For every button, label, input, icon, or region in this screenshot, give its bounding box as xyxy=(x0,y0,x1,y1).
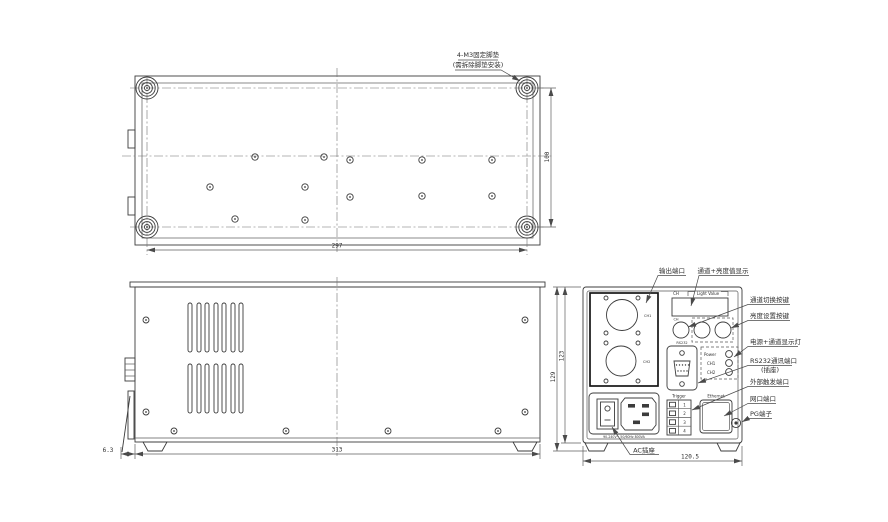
rs232-label: RS232 xyxy=(676,341,687,345)
annotation-rs232-port: RS232通讯端口 xyxy=(750,356,797,365)
rear-view: CH1 CH2 CH Light Value CH RS232 xyxy=(550,287,742,466)
side-tab xyxy=(128,197,135,215)
dim-depth-100: 100 xyxy=(544,151,551,162)
ch2-label: CH2 xyxy=(643,360,650,364)
dim-width-313: 313 xyxy=(332,447,343,454)
db9-pins xyxy=(676,364,689,371)
brightness-up-button xyxy=(694,322,710,338)
ethernet-label: Ethernet xyxy=(707,394,725,399)
feet xyxy=(585,443,740,451)
screw-holes xyxy=(207,154,495,223)
output-connector-ch1 xyxy=(607,300,638,331)
display-ch-label: CH xyxy=(673,291,679,296)
button-ch-label: CH xyxy=(673,318,678,322)
ethernet-jack: Ethernet xyxy=(700,394,732,434)
annotation-rs232-port-sub: (插座) xyxy=(761,365,779,374)
brightness-down-button xyxy=(715,322,731,338)
trigger-label: Trigger xyxy=(671,394,686,399)
annotation-channel-switch-key: 通道切换按键 xyxy=(750,295,790,304)
note-line1: 4-M3固定脚垫 xyxy=(457,50,500,59)
trigger-pin-3: 3 xyxy=(683,420,686,425)
note-line2: (需拆除脚垫安装) xyxy=(453,60,504,69)
output-connector-ch2 xyxy=(606,346,636,376)
ch1-label: CH1 xyxy=(644,314,651,318)
annotation-display: 通道+亮度值显示 xyxy=(698,266,749,275)
channel-switch-button xyxy=(673,322,689,338)
power-switch xyxy=(597,399,618,429)
dim-width-120-5: 120.5 xyxy=(681,454,699,461)
top-view-dimensions: 297 100 xyxy=(147,88,556,250)
power-led xyxy=(726,351,733,358)
ch1-led-label: CH1 xyxy=(707,361,716,366)
ch1-led xyxy=(726,360,733,367)
trigger-pin-1: 1 xyxy=(683,403,686,408)
trigger-pin-2: 2 xyxy=(683,411,686,416)
ac-rating-text: 90-240V~ 50/60Hz 800VA xyxy=(603,435,645,439)
vent-slots xyxy=(188,303,243,413)
left-connectors xyxy=(122,358,135,452)
pg-terminal xyxy=(731,418,740,427)
side-view-dimensions: 313 6.3 xyxy=(103,444,540,459)
trigger-pin-4: 4 xyxy=(683,429,686,434)
side-view: 313 6.3 xyxy=(103,277,545,459)
annotation-pg-terminal: PG端子 xyxy=(750,409,772,418)
dim-height-123: 123 xyxy=(559,350,566,361)
power-led-label: Power xyxy=(704,352,716,357)
led-indicators: Power CH1 CH2 xyxy=(701,347,738,379)
rs232-connector: RS232 xyxy=(667,341,697,390)
value-display-screen xyxy=(672,298,728,316)
trigger-terminal: Trigger 1 2 3 4 xyxy=(667,394,691,436)
technical-drawing: 297 100 4-M3固定脚垫 (需拆除脚垫安装) xyxy=(0,0,888,522)
ac-inlet-module: 90-240V~ 50/60Hz 800VA xyxy=(589,393,659,439)
annotation-brightness-set-key: 亮度设置按键 xyxy=(750,311,790,320)
ac-socket-c14 xyxy=(621,398,656,430)
output-plate: CH1 CH2 xyxy=(590,293,658,386)
top-view: 297 100 4-M3固定脚垫 (需拆除脚垫安装) xyxy=(122,50,556,255)
annotation-ac-socket: AC插座 xyxy=(633,446,655,455)
annotation-external-trigger-port: 外部触发端口 xyxy=(750,377,789,386)
center-lines xyxy=(122,68,552,255)
dim-height-129: 129 xyxy=(550,371,557,382)
annotation-lan-port: 网口端口 xyxy=(750,394,776,403)
display-value-label: Light Value xyxy=(697,291,720,296)
side-tab xyxy=(128,130,135,148)
ch2-led-label: CH2 xyxy=(707,370,716,375)
annotation-power-channel-led: 电源+通道显示灯 xyxy=(750,337,801,346)
dim-foot-6-3: 6.3 xyxy=(103,447,114,454)
display: CH Light Value xyxy=(672,291,728,316)
dim-width-297: 297 xyxy=(332,243,343,250)
annotation-output-port: 输出端口 xyxy=(659,266,685,275)
